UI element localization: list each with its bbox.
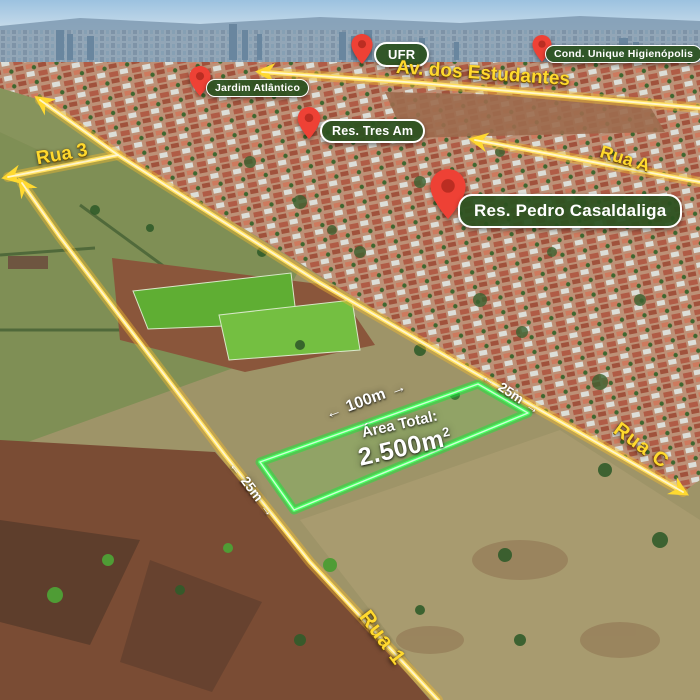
side-length-value: 25m	[238, 474, 266, 505]
road-label-rua-1: Rua 1	[354, 606, 411, 670]
arrow-left-icon: ←	[479, 369, 498, 389]
lot-side-measurement-left: ← 25m →	[226, 458, 278, 520]
road-label-rua-3: Rua 3	[35, 140, 90, 171]
lot-side-measurement-right: ← 25m →	[479, 369, 543, 418]
arrow-right-icon: →	[523, 397, 542, 417]
map-pin-icon-res-tres-am	[297, 107, 321, 139]
location-pill-jardim-atlantico: Jardim Atlântico	[206, 79, 309, 97]
location-pill-res-tres-am: Res. Tres Am	[320, 119, 425, 143]
location-pill-res-pedro-casaldaliga: Res. Pedro Casaldaliga	[458, 194, 682, 228]
location-label: Res. Pedro Casaldaliga	[474, 201, 666, 221]
front-length-value: 100m	[344, 386, 389, 417]
location-label: Cond. Unique Higienópolis	[554, 48, 693, 60]
location-label: Jardim Atlântico	[215, 82, 300, 94]
arrow-right-icon: →	[258, 500, 278, 520]
arrow-left-icon: ←	[226, 458, 246, 478]
road-label-rua-a: Rua A	[597, 141, 652, 176]
aerial-lot-advert: UFR Cond. Unique Higienópolis Jardim Atl…	[0, 0, 700, 700]
arrow-left-icon: ←	[323, 402, 344, 424]
lot-total-area: Área Total: 2.500m2	[352, 407, 454, 472]
location-label: Res. Tres Am	[332, 124, 413, 138]
location-pill-cond-unique: Cond. Unique Higienópolis	[545, 45, 700, 63]
arrow-right-icon: →	[388, 378, 409, 400]
map-pin-icon-ufr	[351, 34, 373, 64]
road-label-av-dos-estudantes: Av. dos Estudantes	[395, 57, 570, 91]
road-label-rua-c: Rua C	[609, 418, 673, 474]
area-exponent: 2	[441, 424, 452, 440]
side-length-value: 25m	[496, 379, 527, 406]
annotation-overlay: UFR Cond. Unique Higienópolis Jardim Atl…	[0, 0, 700, 700]
